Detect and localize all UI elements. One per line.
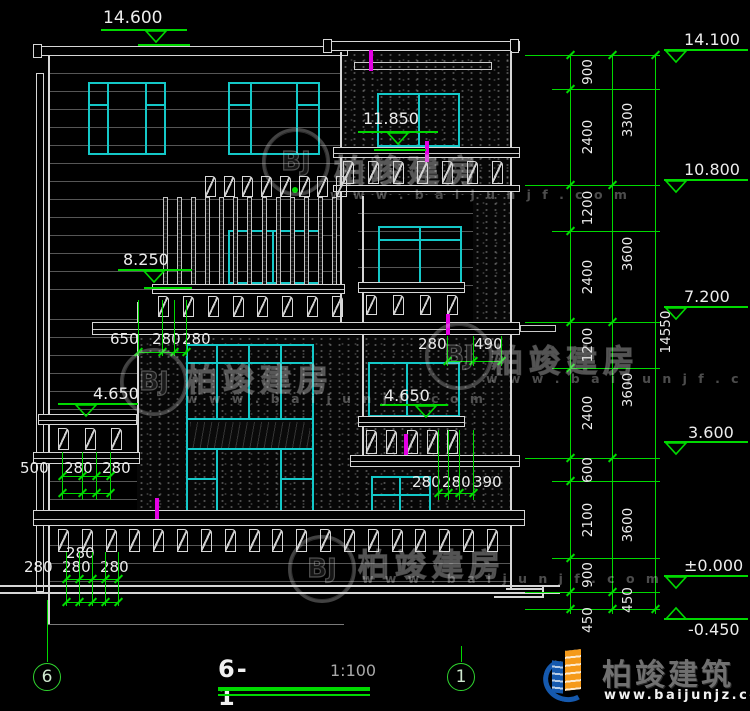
dimension-tick <box>608 453 617 462</box>
baluster <box>415 529 426 552</box>
baluster <box>111 428 122 450</box>
entry-step-1 <box>506 588 543 590</box>
dimension-chain-label: 900 <box>580 553 596 597</box>
dimension-chain-label: 3600 <box>620 368 636 412</box>
elevation-underline <box>664 179 748 181</box>
window-2f-right <box>378 226 462 284</box>
window-1f-right <box>368 362 460 417</box>
window-transom <box>147 104 164 106</box>
drawing-title: 6-1轴立面 <box>218 655 249 711</box>
elevation-underline <box>664 49 748 51</box>
window-mullion <box>248 346 250 418</box>
section-marker <box>404 434 408 455</box>
baluster <box>282 296 293 317</box>
dimension-tick <box>566 226 575 235</box>
level-triangle-icon <box>664 441 688 455</box>
deco-baluster-row-3f <box>205 176 347 197</box>
baluster <box>129 529 140 552</box>
baluster <box>368 529 379 552</box>
trellis-slat-row <box>163 197 337 285</box>
dimension-tick <box>566 50 575 59</box>
window-mullion <box>280 346 282 418</box>
baluster <box>447 295 458 315</box>
window-transom <box>188 478 216 480</box>
window-mullion <box>418 95 420 145</box>
window-central-double-height <box>186 344 314 512</box>
elevation-underline <box>664 306 748 308</box>
dimension-tick <box>88 597 97 606</box>
trellis-slat <box>233 197 238 285</box>
baluster <box>439 529 450 552</box>
baluster <box>366 430 377 454</box>
window-transom <box>188 362 312 364</box>
trellis-slat <box>318 197 323 285</box>
baluster <box>58 529 69 552</box>
baluster <box>242 176 253 197</box>
baluster <box>58 428 69 450</box>
baluster <box>249 529 260 552</box>
baluster <box>299 176 310 197</box>
dimension-tick <box>566 363 575 372</box>
baluster <box>344 529 355 552</box>
wall-edge-left <box>48 56 50 625</box>
elevation-underline <box>664 441 748 443</box>
trellis-slat <box>191 197 196 285</box>
baluster <box>205 176 216 197</box>
window-mullion <box>406 364 408 415</box>
elevation-underline <box>664 575 748 577</box>
logo-building-blue-icon <box>552 660 563 693</box>
dimension-chain-label: 2400 <box>580 255 596 299</box>
wall-edge-bulkhead <box>340 52 342 150</box>
roof-slab-cap-mid <box>323 39 332 53</box>
extension-line <box>552 89 660 90</box>
axis-bubble-6: 6 <box>33 663 61 691</box>
window-mullion <box>280 450 282 510</box>
entry-step-edge <box>542 586 544 598</box>
baluster <box>158 296 169 317</box>
dimension-chain-label: 2400 <box>580 115 596 159</box>
dimension-chain-label: 2100 <box>580 498 596 542</box>
baluster <box>280 176 291 197</box>
title-underline-thin <box>218 694 370 696</box>
porch-rail-band <box>33 510 525 526</box>
baluster <box>272 529 283 552</box>
dimension-tick <box>101 597 110 606</box>
elevation-underline <box>101 29 187 31</box>
baluster <box>366 295 377 315</box>
baluster <box>153 529 164 552</box>
footer-brand-url: www.baijunjz.com <box>604 688 750 703</box>
footer-logo: 柏竣建筑 www.baijunjz.com <box>543 648 750 710</box>
baluster <box>407 430 418 454</box>
dimension-tick <box>566 180 575 189</box>
window-transom <box>230 104 250 106</box>
dimension-chain-label: 3300 <box>620 98 636 142</box>
level-triangle-icon <box>664 179 688 193</box>
elevation-label: 14.100 <box>684 30 740 49</box>
drawing-scale: 1:100 <box>330 661 376 680</box>
trellis-slat <box>304 197 309 285</box>
dimension-tick <box>566 317 575 326</box>
window-transom <box>188 448 312 450</box>
dimension-tick <box>608 587 617 596</box>
extension-line <box>552 481 660 482</box>
baluster <box>417 161 428 184</box>
dimension-tick <box>62 597 71 606</box>
dimension-chain-line <box>570 55 571 614</box>
dimension-tick <box>114 597 123 606</box>
dimension-tick <box>566 553 575 562</box>
baluster <box>386 430 397 454</box>
dimension-chain-label: 3600 <box>620 232 636 276</box>
balcony-rail-band-1f-right <box>358 416 465 427</box>
siding-wall-left-lower <box>48 464 137 510</box>
window-mullion <box>145 84 147 153</box>
dimension-chain-label: 600 <box>580 448 596 492</box>
trellis-slat <box>219 197 224 285</box>
balcony-baluster-row-2f-right <box>366 295 458 315</box>
roof-slab-cap-left <box>33 44 42 58</box>
baluster <box>393 295 404 315</box>
baluster <box>427 430 438 454</box>
terrace-floor-slab <box>333 185 520 192</box>
baluster <box>393 161 404 184</box>
section-marker <box>155 498 159 519</box>
baluster <box>225 529 236 552</box>
dimension-chain-label: 2400 <box>580 391 596 435</box>
dimension-tick <box>566 587 575 596</box>
balcony-rail-band-2f-right <box>358 282 465 293</box>
baluster <box>332 296 343 317</box>
section-marker <box>425 141 429 162</box>
balcony-baluster-row-1f-left <box>58 428 122 450</box>
baluster <box>336 176 347 197</box>
baluster <box>447 430 458 454</box>
window-mullion <box>296 84 298 153</box>
baluster <box>85 428 96 450</box>
watermark-url: w w w . b a i j u n j f . c o m <box>486 371 750 386</box>
baluster <box>296 529 307 552</box>
dimension-tick <box>566 476 575 485</box>
terrace-baluster-row <box>343 161 503 184</box>
elevation-underline <box>664 618 748 620</box>
title-underline-thick <box>218 687 370 691</box>
axis-line-6 <box>47 600 48 662</box>
roof-slab-bulkhead <box>326 41 520 51</box>
extension-line <box>525 458 660 459</box>
baluster <box>463 529 474 552</box>
window-transom <box>380 239 460 241</box>
trellis-slat <box>332 197 337 285</box>
baluster <box>467 161 478 184</box>
level-triangle-icon <box>664 49 688 63</box>
dimension-tick <box>566 84 575 93</box>
watermark-brand: 柏竣建房 <box>492 336 640 381</box>
dimension-tick <box>608 50 617 59</box>
level-triangle-icon <box>664 306 688 320</box>
floor-slab-7200 <box>92 322 520 335</box>
dimension-tick <box>608 317 617 326</box>
entry-step-3 <box>494 596 543 598</box>
baluster <box>177 529 188 552</box>
dimension-tick <box>608 180 617 189</box>
logo-building-orange-icon <box>565 649 581 691</box>
extension-line <box>552 558 660 559</box>
window-transom <box>298 104 318 106</box>
siding-wall-left <box>48 302 137 414</box>
extension-line <box>525 185 660 186</box>
trellis-slat <box>276 197 281 285</box>
elevation-label: -0.450 <box>688 620 740 639</box>
elevation-label: ±0.000 <box>684 556 743 575</box>
axis-label: 1 <box>456 667 467 687</box>
extension-line <box>525 322 660 323</box>
window-transom <box>90 104 107 106</box>
elevation-label: 10.800 <box>684 160 740 179</box>
window-transom <box>282 478 312 480</box>
baluster <box>208 296 219 317</box>
baluster <box>233 296 244 317</box>
window-3f-right <box>228 82 320 155</box>
baluster <box>201 529 212 552</box>
baluster <box>317 176 328 197</box>
dimension-tick <box>651 604 660 613</box>
level-triangle-icon <box>144 29 168 43</box>
baluster <box>392 529 403 552</box>
balcony-rail-band-1f-left <box>38 414 137 425</box>
window-mullion <box>216 450 218 510</box>
baluster <box>492 161 503 184</box>
trellis-slat <box>205 197 210 285</box>
trellis-slat <box>247 197 252 285</box>
window-bulkhead <box>377 93 460 147</box>
dimension-tick <box>75 597 84 606</box>
dimension-chain-label: 1200 <box>580 323 596 367</box>
dimension-chain-label: 3600 <box>620 503 636 547</box>
slab-ledge-right <box>520 325 556 332</box>
ground-line-lower <box>0 592 560 594</box>
window-ground-right <box>371 476 431 512</box>
dimension-chain-label: 450 <box>580 598 596 642</box>
extension-line <box>525 609 660 610</box>
dimension-tick <box>651 50 660 59</box>
cad-elevation-drawing: 6 1 6-1轴立面 1:100 柏竣建筑 www.baijunjz.com 1… <box>0 0 750 711</box>
trellis-slat <box>163 197 168 285</box>
level-triangle-icon <box>664 605 688 619</box>
dimension-chain-label: 14550 <box>658 310 674 354</box>
window-spandrel-panel <box>190 422 310 448</box>
trellis-slat <box>262 197 267 285</box>
dimension-chain-line <box>655 55 656 614</box>
axis-label: 6 <box>42 667 53 687</box>
ground-line-upper <box>0 585 560 587</box>
window-transom <box>373 494 429 496</box>
window-mullion <box>107 84 109 153</box>
baluster <box>82 529 93 552</box>
floor-slab-3600-right <box>350 455 520 467</box>
baluster <box>106 529 117 552</box>
axis-line-1 <box>461 646 462 662</box>
trellis-slat <box>177 197 182 285</box>
baluster <box>487 529 498 552</box>
extension-line <box>552 368 660 369</box>
baluster <box>368 161 379 184</box>
dimension-line <box>66 602 118 603</box>
dimension-tick <box>566 453 575 462</box>
vent-slot <box>354 62 492 70</box>
baluster <box>261 176 272 197</box>
elevation-label: 14.600 <box>103 8 162 28</box>
balcony-baluster-row-2f <box>158 296 343 317</box>
level-triangle-icon <box>664 575 688 589</box>
extension-line <box>552 231 660 232</box>
entry-step-2 <box>500 592 543 594</box>
baluster <box>224 176 235 197</box>
dimension-tick <box>566 604 575 613</box>
baluster <box>257 296 268 317</box>
window-mullion <box>419 228 421 282</box>
roof-slab-main <box>36 46 348 56</box>
dimension-tick <box>608 604 617 613</box>
porch-baluster-row <box>58 529 498 552</box>
balcony-baluster-row-1f-right <box>366 430 458 454</box>
window-mullion <box>250 84 252 153</box>
elevation-label: 7.200 <box>684 287 730 306</box>
dimension-chain-label: 450 <box>620 578 636 622</box>
window-3f-left <box>88 82 166 155</box>
elevation-label: 3.600 <box>688 423 734 442</box>
baluster <box>307 296 318 317</box>
window-mullion <box>216 346 218 418</box>
stipple-wall-right-column <box>473 195 511 335</box>
baluster <box>320 529 331 552</box>
baluster <box>183 296 194 317</box>
dimension-chain-line <box>612 55 613 614</box>
section-marker <box>369 50 373 71</box>
window-transom <box>188 418 312 420</box>
section-marker <box>446 314 450 335</box>
balcony-rail-band-2f <box>152 284 345 294</box>
baluster <box>442 161 453 184</box>
dimension-chain-label: 1200 <box>580 186 596 230</box>
extension-line <box>525 55 660 56</box>
trellis-slat <box>290 197 295 285</box>
axis-bubble-1: 1 <box>447 663 475 691</box>
dimension-chain-label: 900 <box>580 50 596 94</box>
footing-line <box>48 624 344 625</box>
baluster <box>420 295 431 315</box>
floor-slab-3600-left <box>33 452 140 464</box>
